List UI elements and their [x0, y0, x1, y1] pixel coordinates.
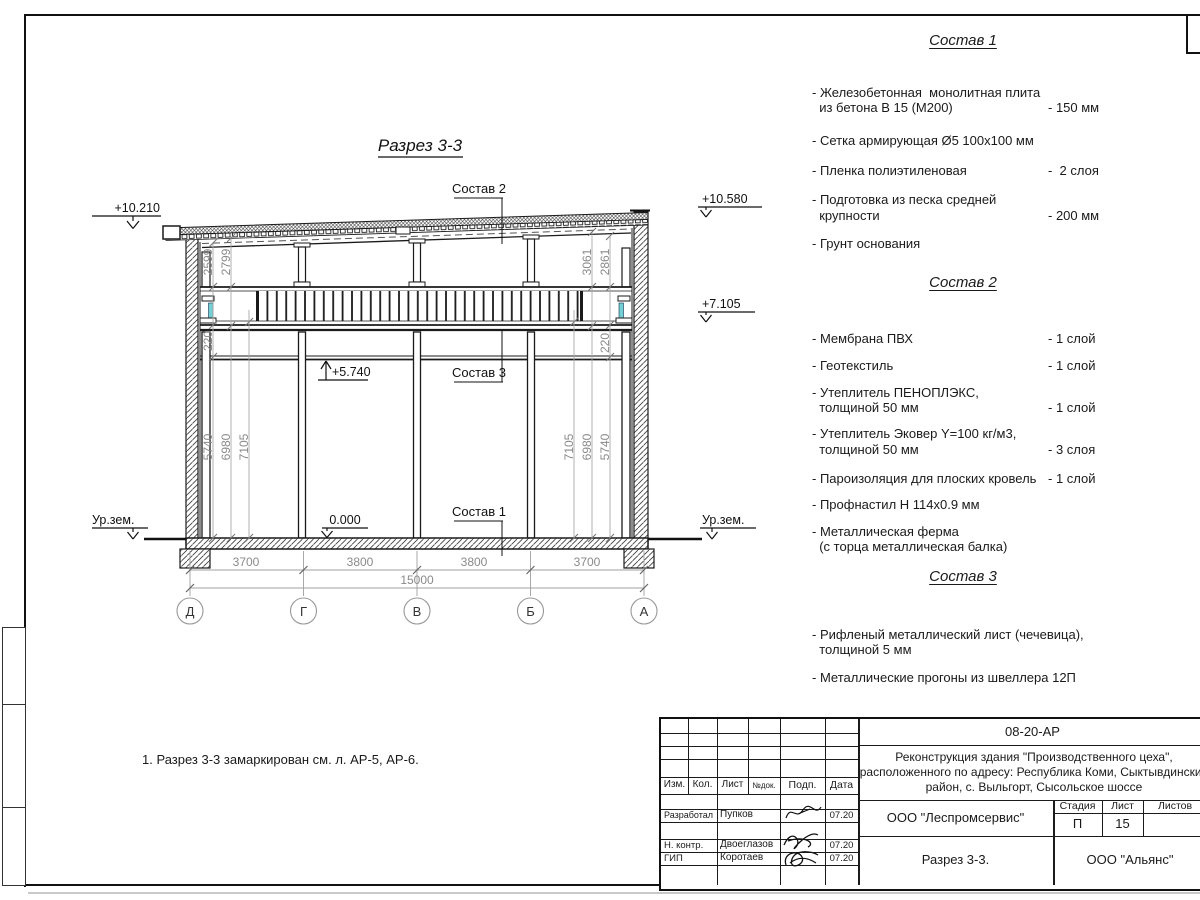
elev-right-top-text: +10.580	[702, 192, 748, 206]
item-name: - Пленка полиэтиленовая	[812, 163, 1048, 178]
sostav1-list: Состав 1 - Железобетонная монолитная пли…	[812, 32, 1114, 251]
axis-d: Д	[186, 604, 195, 619]
list-item: - Грунт основания	[812, 236, 1114, 251]
item-name: - Железобетонная монолитная плита из бет…	[812, 85, 1048, 116]
gridline	[661, 822, 858, 823]
list-item: - Рифленый металлический лист (чечевица)…	[812, 627, 1114, 658]
item-value: - 2 слоя	[1048, 163, 1099, 178]
axis-v: В	[413, 604, 422, 619]
elevation-ground-right: Ур.зем.	[700, 513, 756, 539]
sostav2-title: Состав 2	[812, 274, 1114, 291]
item-name: - Металлические прогоны из швеллера 12П	[812, 670, 1082, 685]
drawing-sheet: { "drawing": { "title": "Разрез 3-3", "l…	[0, 0, 1200, 900]
tb-name-ncontrol: Двоеглазов	[717, 839, 780, 852]
tb-role-developer: Разработал	[661, 809, 717, 822]
paper-edge	[28, 892, 1200, 894]
section-title-text: Разрез 3-3	[378, 136, 463, 155]
vdim-2799: 2799	[219, 248, 233, 275]
list-item: - Пароизоляция для плоских кровель - 1 с…	[812, 471, 1114, 486]
roof-end-cap	[163, 226, 180, 239]
tb-col-izm: Изм.	[661, 777, 688, 794]
item-name: - Сетка армирующая Ø5 100х100 мм	[812, 133, 1048, 148]
item-value: - 1 слой	[1048, 358, 1096, 373]
label-sostav2: Состав 2	[452, 181, 506, 196]
tb-name-gip: Коротаев	[717, 852, 780, 865]
cyan-fixture-right	[619, 303, 624, 318]
elev-left-top-text: +10.210	[114, 201, 160, 215]
tb-customer: ООО "Альянс"	[1053, 836, 1200, 885]
roof	[163, 213, 648, 248]
item-value: - 1 слой	[1048, 471, 1096, 486]
item-value: - 3 слоя	[1048, 442, 1095, 457]
tb-project-name: Реконструкция здания "Производственного …	[858, 745, 1200, 800]
item-name: - Геотекстиль	[812, 358, 1048, 373]
list-item: - Металлические прогоны из швеллера 12П	[812, 670, 1114, 685]
foundation-left	[180, 549, 210, 568]
sostav3-title: Состав 3	[812, 568, 1114, 585]
tb-sheets-value	[1143, 813, 1200, 836]
elevation-ground-left: Ур.зем.	[92, 513, 148, 539]
sostav2-list: Состав 2 - Мембрана ПВХ - 1 слой - Геоте…	[812, 274, 1114, 554]
list-item: - Пленка полиэтиленовая - 2 слоя	[812, 163, 1114, 178]
item-name: - Пароизоляция для плоских кровель	[812, 471, 1048, 486]
list-item: - Профнастил Н 114х0.9 мм	[812, 497, 1114, 512]
elev-floor-text: 0.000	[329, 513, 360, 527]
tb-sheet-label: Лист	[1102, 800, 1143, 813]
label-sostav1: Состав 1	[452, 504, 506, 519]
dim-total: 15000	[400, 573, 434, 587]
tb-date-developer: 07.20	[825, 809, 858, 822]
item-name: - Рифленый металлический лист (чечевица)…	[812, 627, 1082, 658]
section-drawing: Разрез 3-3	[80, 125, 780, 645]
item-name: - Утеплитель ПЕНОПЛЭКС, толщиной 50 мм	[812, 385, 1048, 416]
upper-posts	[202, 235, 630, 287]
sostav1-items: - Железобетонная монолитная плита из бет…	[812, 85, 1114, 251]
vdim-2599: 2599	[201, 248, 215, 275]
elevation-floor: 0.000	[322, 513, 369, 538]
sostav2-items: - Мембрана ПВХ - 1 слой - Геотекстиль - …	[812, 331, 1114, 554]
foundation-right	[624, 549, 654, 568]
vdim-7105-left: 7105	[237, 433, 251, 460]
margin-box-1	[2, 627, 26, 706]
margin-box-2	[2, 704, 26, 809]
dim-3800-2: 3800	[461, 555, 488, 569]
item-name: - Подготовка из песка средней крупности	[812, 192, 1048, 223]
vdim-6980-right: 6980	[580, 433, 594, 460]
item-value: - 150 мм	[1048, 100, 1099, 115]
item-name: - Металлическая ферма (с торца металличе…	[812, 524, 1048, 555]
sostav3-list: Состав 3 - Рифленый металлический лист (…	[812, 568, 1114, 685]
truss-band	[200, 287, 632, 330]
list-item: - Сетка армирующая Ø5 100х100 мм	[812, 133, 1114, 148]
gridline	[661, 733, 858, 734]
gridline	[661, 746, 858, 747]
tb-name-developer: Пупков	[717, 809, 780, 822]
vertical-dimensions: 2599 2799 220 5740 6980 7105 3061 2861 2…	[201, 228, 614, 542]
cyan-fixture-left	[209, 303, 214, 318]
list-item: - Железобетонная монолитная плита из бет…	[812, 85, 1114, 116]
elev-ground-right-text: Ур.зем.	[702, 513, 744, 527]
tb-doc-number: 08-20-АР	[858, 719, 1200, 745]
elev-mezzanine-text: +5.740	[332, 365, 371, 379]
tb-col-ndok: №док.	[748, 777, 780, 794]
list-item: - Утеплитель ПЕНОПЛЭКС, толщиной 50 мм -…	[812, 385, 1114, 416]
elevation-mezzanine: +5.740	[318, 361, 371, 380]
vdim-220-right: 220	[598, 333, 612, 353]
axis-a: А	[640, 604, 649, 619]
tb-date-gip: 07.20	[825, 852, 858, 865]
tb-sheets-label: Листов	[1143, 800, 1200, 813]
dim-3800-1: 3800	[347, 555, 374, 569]
tb-col-podp: Подп.	[780, 777, 825, 794]
title-block: Изм. Кол. Лист №док. Подп. Дата Разработ…	[659, 717, 1200, 891]
sostav1-title: Состав 1	[812, 32, 1114, 49]
floor-slab	[144, 538, 702, 568]
list-item: - Подготовка из песка средней крупности …	[812, 192, 1114, 223]
vdim-6980-left: 6980	[219, 433, 233, 460]
vdim-5740-right: 5740	[598, 433, 612, 460]
list-item: - Утеплитель Эковер Y=100 кг/м3, толщино…	[812, 426, 1114, 457]
elevation-left-top: +10.210	[92, 201, 161, 229]
elevation-right-top: +10.580	[698, 192, 762, 217]
sheet-note: 1. Разрез 3-3 замаркирован см. л. АР-5, …	[142, 752, 419, 767]
tb-stage-value: П	[1053, 813, 1102, 836]
list-item: - Мембрана ПВХ - 1 слой	[812, 331, 1114, 346]
tb-role-ncontrol: Н. контр.	[661, 839, 717, 852]
dim-3700-1: 3700	[233, 555, 260, 569]
tb-stage-label: Стадия	[1053, 800, 1102, 813]
tb-col-data: Дата	[825, 777, 858, 794]
item-name: - Грунт основания	[812, 236, 1048, 251]
gridline	[661, 865, 858, 866]
bottom-dimensions: 3700 3800 3800 3700 15000	[186, 551, 648, 596]
frame-top	[25, 14, 1200, 16]
vdim-5740-left: 5740	[201, 433, 215, 460]
tb-sheet-value: 15	[1102, 813, 1143, 836]
section-title: Разрез 3-3	[378, 136, 463, 157]
vdim-220-left: 220	[201, 331, 215, 351]
sostav3-items: - Рифленый металлический лист (чечевица)…	[812, 627, 1114, 685]
vdim-3061: 3061	[580, 248, 594, 275]
item-name: - Утеплитель Эковер Y=100 кг/м3, толщино…	[812, 426, 1048, 457]
list-item: - Геотекстиль - 1 слой	[812, 358, 1114, 373]
margin-box-3	[2, 807, 26, 886]
item-value: - 1 слой	[1048, 331, 1096, 346]
signature-ncontrol-gip	[778, 825, 825, 873]
vdim-7105-right: 7105	[562, 433, 576, 460]
tb-drawing-name: Разрез 3-3.	[858, 836, 1053, 885]
vdim-2861: 2861	[598, 248, 612, 275]
item-name: - Профнастил Н 114х0.9 мм	[812, 497, 1048, 512]
dim-3700-2: 3700	[574, 555, 601, 569]
tb-col-list: Лист	[717, 777, 748, 794]
elev-right-mid-text: +7.105	[702, 297, 741, 311]
axis-g: Г	[300, 604, 307, 619]
label-sostav3: Состав 3	[452, 365, 506, 380]
tb-org: ООО "Леспромсервис"	[858, 800, 1053, 836]
roof-detail	[396, 227, 410, 234]
list-item: - Металлическая ферма (с торца металличе…	[812, 524, 1114, 555]
axis-b: Б	[526, 604, 535, 619]
signature-developer	[782, 801, 824, 825]
tb-date-ncontrol: 07.20	[825, 839, 858, 852]
elev-ground-left-text: Ур.зем.	[92, 513, 134, 527]
tb-col-kol: Кол.	[688, 777, 717, 794]
elevation-right-mid: +7.105	[698, 297, 755, 322]
gridline	[661, 794, 858, 795]
item-value: - 200 мм	[1048, 208, 1099, 223]
gridline	[661, 759, 858, 760]
tb-role-gip: ГИП	[661, 852, 717, 865]
axis-bubbles: Д Г В Б А	[177, 598, 657, 624]
item-name: - Мембрана ПВХ	[812, 331, 1048, 346]
frame-corner-box	[1186, 14, 1200, 54]
item-value: - 1 слой	[1048, 400, 1096, 415]
